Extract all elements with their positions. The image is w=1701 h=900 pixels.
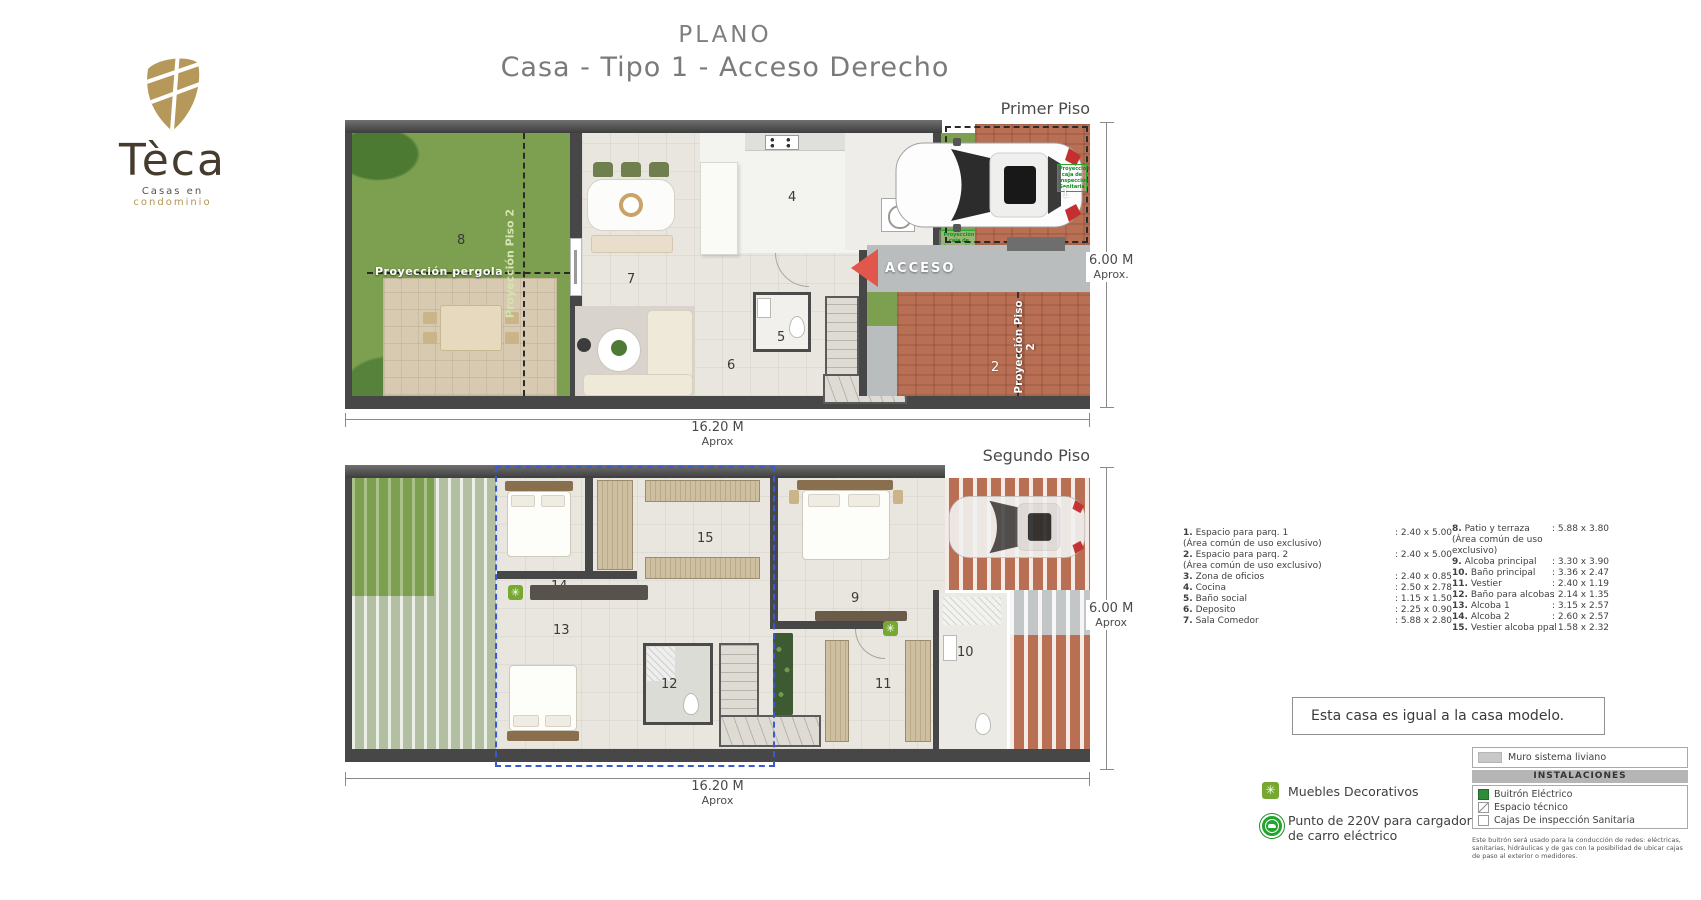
dining-chair xyxy=(649,162,669,177)
floor2-left-wall xyxy=(345,478,352,757)
legend-item: 1. Espacio para parq. 1: 2.40 x 5.00 xyxy=(1183,528,1451,539)
nightstand xyxy=(893,490,903,504)
cajas-swatch xyxy=(1478,815,1489,826)
legend-item: 12. Baño para alcobas: 2.14 x 1.35 xyxy=(1452,590,1652,601)
stairs xyxy=(825,296,859,378)
walkway-2 xyxy=(1010,590,1090,635)
tv-console xyxy=(815,611,907,621)
legend-item-sub: (Área común de uso xyxy=(1452,535,1652,546)
gate-block xyxy=(1007,237,1065,251)
stair-planter xyxy=(773,633,793,715)
pillow xyxy=(808,494,840,507)
pergola-table xyxy=(440,305,502,351)
room-number-8: 8 xyxy=(457,233,465,248)
legend-item: 4. Cocina: 2.50 x 2.78 xyxy=(1183,583,1451,594)
title-line1: PLANO xyxy=(400,22,1050,48)
kitchen-counter xyxy=(745,133,859,151)
room-2-parking xyxy=(897,292,1090,396)
leaf-icon xyxy=(105,55,240,135)
floor2-width-dim: 16.20 M Aprox xyxy=(345,779,1090,808)
floor1-label: Primer Piso xyxy=(900,99,1090,118)
model-note-text: Esta casa es igual a la casa modelo. xyxy=(1311,708,1564,724)
pergola-chair xyxy=(423,332,437,344)
sliding-door xyxy=(570,238,582,296)
instalaciones-header: INSTALACIONES xyxy=(1472,770,1688,783)
room-number-2: 2 xyxy=(991,360,999,375)
legend-item: 3. Zona de oficios: 2.40 x 0.85 xyxy=(1183,572,1451,583)
floor1-bottom-wall xyxy=(345,396,1090,409)
piso2-projection-line-left xyxy=(523,133,525,396)
room-number-10: 10 xyxy=(957,645,974,660)
sink-icon xyxy=(943,635,957,661)
legend-item: 11. Vestier: 2.40 x 1.19 xyxy=(1452,579,1652,590)
piso2-projection-label-right: Proyección Piso 2 xyxy=(1013,297,1037,397)
legend-item-sub: (Área común de uso exclusivo) xyxy=(1183,561,1451,572)
wardrobe xyxy=(825,640,849,742)
dining-chair xyxy=(621,162,641,177)
dining-centerpiece xyxy=(619,193,643,217)
muebles-decorativos-label: Muebles Decorativos xyxy=(1288,784,1419,799)
headboard xyxy=(797,480,893,490)
legend-item: 8. Patio y terraza: 5.88 x 3.80 xyxy=(1452,524,1652,535)
dining-bench xyxy=(591,235,673,253)
walkway xyxy=(867,326,897,396)
nightstand xyxy=(789,490,799,504)
legend-item: 15. Vestier alcoba ppal: 1.58 x 2.32 xyxy=(1452,623,1652,634)
brand-logo: Tèca Casas en condominio xyxy=(105,55,240,208)
floor1-top-wall xyxy=(345,120,942,133)
legend-item: 2. Espacio para parq. 2: 2.40 x 5.00 xyxy=(1183,550,1451,561)
legend-item: 10. Baño principal: 3.36 x 2.47 xyxy=(1452,568,1652,579)
legend-item: 6. Deposito: 2.25 x 0.90 xyxy=(1183,605,1451,616)
legend-item: 13. Alcoba 1: 3.15 x 2.57 xyxy=(1452,601,1652,612)
room-legend-col2: 8. Patio y terraza: 5.88 x 3.80 (Área co… xyxy=(1452,524,1652,634)
legend-item-sub: (Área común de uso exclusivo) xyxy=(1183,539,1451,550)
side-garden-2 xyxy=(867,292,897,326)
floor2-plan: 14 15 ✳ 13 12 9 ✳ xyxy=(345,465,1090,770)
model-note-box: Esta casa es igual a la casa modelo. xyxy=(1292,697,1605,735)
floor1-height-dim: 6.00 M Aprox. xyxy=(1086,252,1136,282)
floor1-left-wall xyxy=(345,133,352,404)
cajas-label: Cajas De inspección Sanitaria xyxy=(1494,815,1635,826)
espacio-tecnico-label: Espacio técnico xyxy=(1494,802,1568,813)
sheet-title: PLANO Casa - Tipo 1 - Acceso Derecho xyxy=(400,22,1050,83)
ghost-car-top-view xyxy=(947,483,1087,571)
floor-lamp xyxy=(577,338,591,352)
toilet-icon xyxy=(975,713,991,735)
ev-charger-key-label: Punto de 220V para cargador de carro elé… xyxy=(1288,813,1472,843)
sink-icon xyxy=(757,298,771,318)
muro-swatch xyxy=(1478,752,1502,763)
espacio-tecnico-swatch xyxy=(1478,802,1489,813)
room-number-4: 4 xyxy=(788,190,796,205)
brand-name: Tèca xyxy=(105,135,240,186)
dining-chair xyxy=(593,162,613,177)
room-number-7: 7 xyxy=(627,272,635,287)
legend-item: 5. Baño social: 1.15 x 1.50 xyxy=(1183,594,1451,605)
buitron-label: Buitrón Eléctrico xyxy=(1494,789,1572,800)
pergola-chair xyxy=(423,312,437,324)
floor1-plan: Proyección pergola Proyección Piso 2 8 4… xyxy=(345,120,1090,410)
model-selection-outline xyxy=(495,466,775,767)
muro-label: Muro sistema liviano xyxy=(1508,752,1606,763)
legend-item: 14. Alcoba 2: 2.60 x 2.57 xyxy=(1452,612,1652,623)
room-number-11: 11 xyxy=(875,677,892,692)
kitchen-island xyxy=(700,162,738,255)
decor-asterisk-icon: ✳ xyxy=(883,621,898,636)
acceso-arrow-icon xyxy=(851,249,878,287)
pergola-chair xyxy=(505,332,519,344)
stove-icon xyxy=(765,135,799,150)
floor2-height-dim: 6.00 M Aprox xyxy=(1086,600,1136,630)
title-line2: Casa - Tipo 1 - Acceso Derecho xyxy=(400,52,1050,83)
wall-segment xyxy=(770,621,890,629)
acceso-label: ACCESO xyxy=(885,261,955,276)
legend-item: 7. Sala Comedor: 5.88 x 2.80 xyxy=(1183,616,1451,627)
room-number-5: 5 xyxy=(777,330,785,345)
buitron-swatch xyxy=(1478,789,1489,800)
pillow xyxy=(848,494,880,507)
buitron-footnote: Este buitrón será usado para la conducci… xyxy=(1472,836,1690,860)
piso2-projection-label-left: Proyección Piso 2 xyxy=(504,199,517,329)
legend-item-sub: exclusivo) xyxy=(1452,546,1652,557)
plan-sheet: Tèca Casas en condominio PLANO Casa - Ti… xyxy=(0,0,1701,900)
brand-tagline: Casas en condominio xyxy=(105,186,240,208)
shower xyxy=(943,597,1001,625)
muebles-decorativos-icon: ✳ xyxy=(1262,782,1279,799)
terrace-grass xyxy=(352,478,434,596)
floor1-width-dim: 16.20 M Aprox xyxy=(345,420,1090,449)
pergola-projection-label: Proyección pergola xyxy=(375,265,503,278)
parking-2-projection xyxy=(1010,635,1090,749)
ev-charger-key-icon xyxy=(1260,814,1284,838)
wardrobe xyxy=(905,640,931,742)
room-legend-col1: 1. Espacio para parq. 1: 2.40 x 5.00 (Ár… xyxy=(1183,528,1451,627)
room-number-1: 1 xyxy=(1061,186,1069,201)
room-number-9: 9 xyxy=(851,591,859,606)
legend-item: 9. Alcoba principal: 3.30 x 3.90 xyxy=(1452,557,1652,568)
room-number-6: 6 xyxy=(727,358,735,373)
toilet-icon xyxy=(789,316,805,338)
plant xyxy=(611,340,627,356)
sofa xyxy=(583,374,693,396)
